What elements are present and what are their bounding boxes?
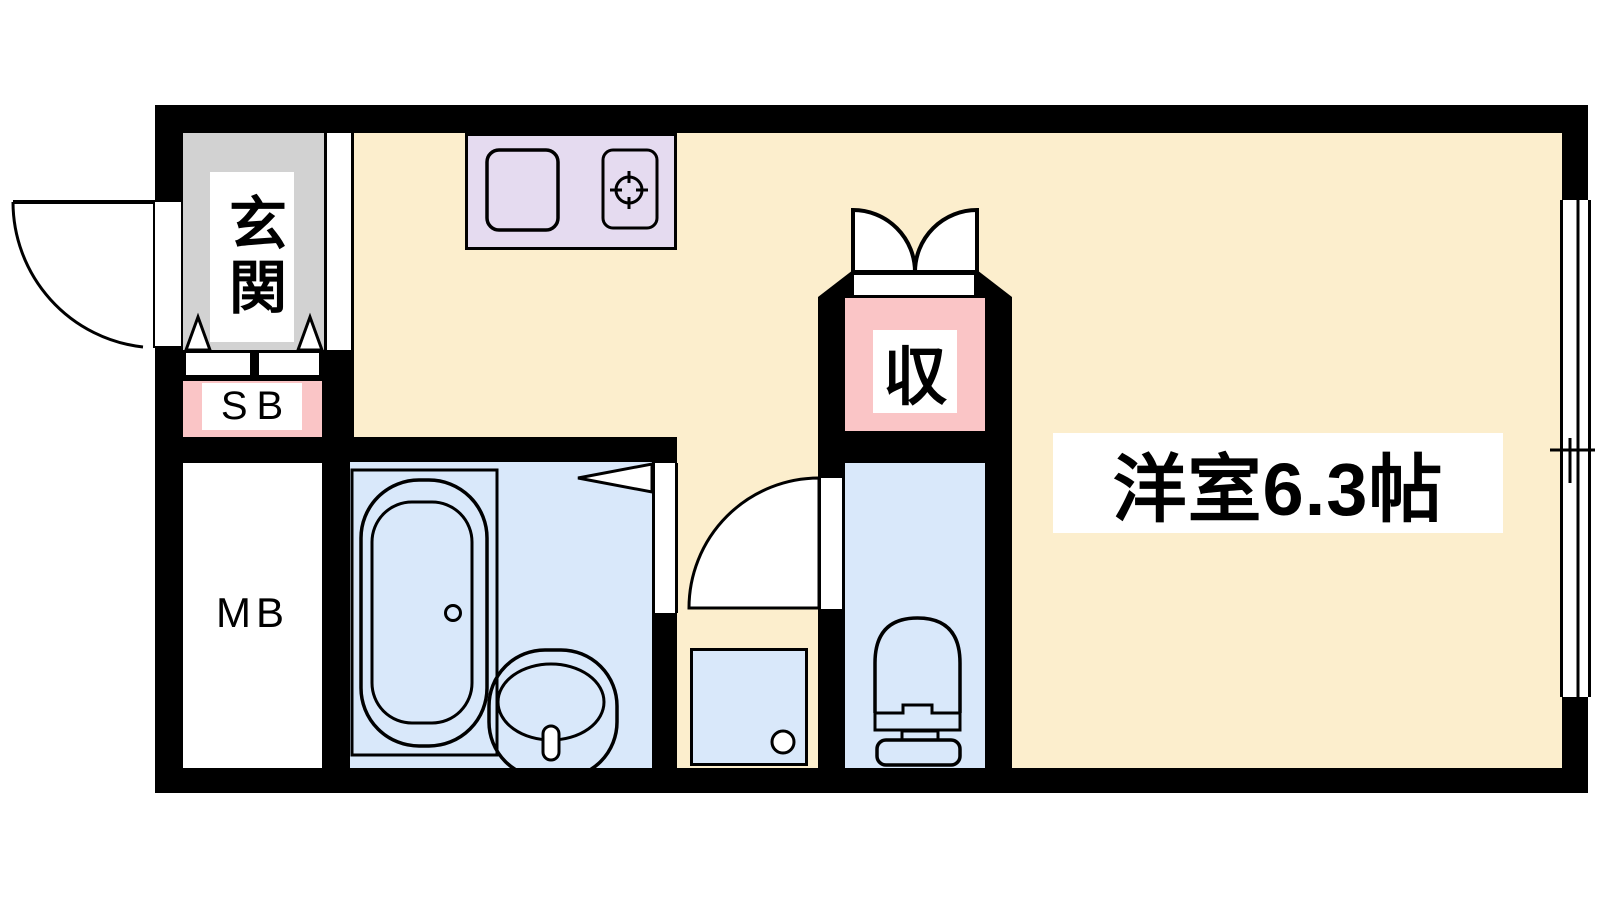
main-room-text: 洋室6.3帖 [1113,430,1444,537]
kitchen-counter [465,133,677,250]
closet-label: 収 [873,330,957,413]
bathroom-floor [350,462,652,768]
meter-box-text: MB [216,589,289,637]
entrance-door-opening [153,200,183,348]
entry-step-left [183,350,253,378]
entrance-kitchen-divider [324,133,354,350]
toilet-door-leaf [818,478,845,609]
shoe-box-label: SB [202,383,302,430]
entry-step-right [256,350,322,378]
sliding-window [1560,200,1591,697]
entrance-door-swing-icon [13,202,155,347]
washing-machine-pan [690,648,808,766]
kitchen-floor-mid [354,270,818,437]
shoe-box-text: SB [212,384,292,429]
toilet-floor [845,463,985,768]
entrance-label: 玄関 [210,172,294,342]
floor-plan: SB MB 収 玄関 洋室6.3帖 [0,0,1600,900]
closet-text: 収 [883,326,947,418]
closet-door-frame [851,272,977,298]
bathroom-door-opening [652,463,678,613]
entrance-text: 玄関 [210,193,294,321]
main-room-label: 洋室6.3帖 [1053,433,1503,533]
meter-box-label: MB [183,583,322,643]
